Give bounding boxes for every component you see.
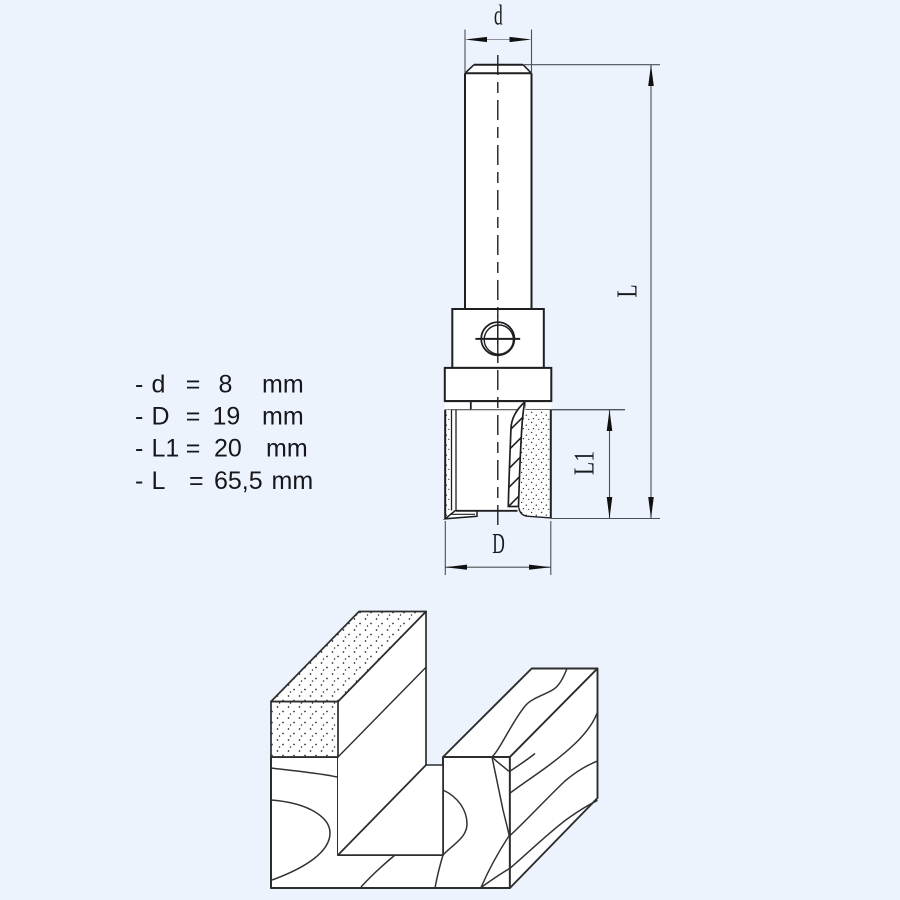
svg-text:=: = xyxy=(189,467,204,495)
svg-text:mm: mm xyxy=(266,435,308,463)
svg-text:L: L xyxy=(152,467,166,495)
svg-text:L: L xyxy=(610,284,643,297)
svg-text:=: = xyxy=(186,370,201,398)
svg-text:=: = xyxy=(186,435,201,463)
svg-text:8: 8 xyxy=(219,370,233,398)
svg-text:=: = xyxy=(186,402,201,430)
svg-text:65,5: 65,5 xyxy=(214,467,263,495)
svg-text:L1: L1 xyxy=(567,451,600,475)
svg-text:mm: mm xyxy=(272,467,314,495)
svg-text:D: D xyxy=(492,529,505,561)
svg-text:mm: mm xyxy=(262,402,304,430)
svg-text:D: D xyxy=(152,402,170,430)
svg-text:d: d xyxy=(494,0,503,32)
svg-text:20: 20 xyxy=(214,435,242,463)
svg-text:19: 19 xyxy=(213,402,241,430)
svg-text:d: d xyxy=(152,370,166,398)
svg-text:L1: L1 xyxy=(152,435,180,463)
svg-text:-: - xyxy=(135,402,143,430)
svg-text:-: - xyxy=(135,435,143,463)
svg-text:-: - xyxy=(135,467,143,495)
svg-text:mm: mm xyxy=(262,370,304,398)
svg-text:-: - xyxy=(135,370,143,398)
